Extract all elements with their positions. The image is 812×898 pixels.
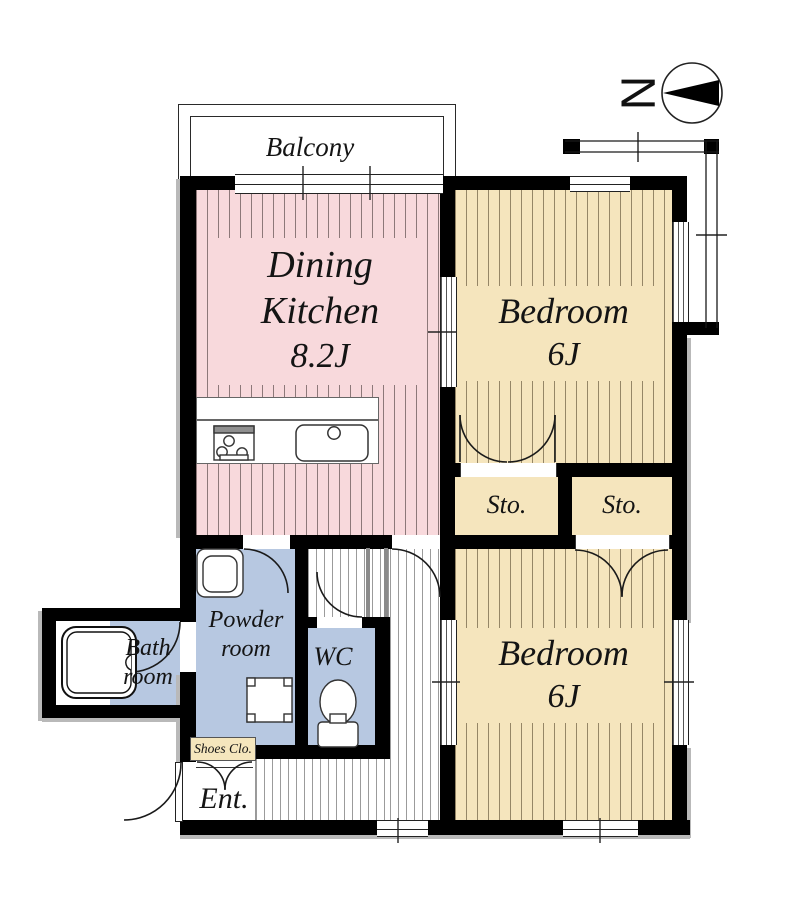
entrance-door-leaf — [175, 762, 183, 822]
wall-segment — [440, 548, 455, 620]
wall-segment — [42, 608, 56, 718]
wall-segment — [42, 608, 180, 621]
wall-segment — [668, 535, 687, 549]
wall-segment — [443, 176, 570, 190]
bedroom-bottom-window — [563, 820, 638, 837]
storage-right-label: Sto. — [572, 489, 672, 521]
balcony-label: Balcony — [230, 131, 390, 164]
hall-bedroom-sliding-door — [440, 620, 457, 745]
compass-north-label: N — [611, 76, 664, 111]
hall-floor-vertical — [390, 548, 440, 820]
dining-kitchen-label: Dining Kitchen 8.2J — [213, 238, 427, 385]
counter-edge-line — [197, 419, 378, 421]
entry-door-arc — [124, 763, 181, 820]
wall-segment — [308, 617, 317, 628]
wc-label: WC — [305, 641, 361, 673]
wall-segment — [180, 176, 196, 535]
hall-floor-horizontal — [256, 759, 390, 820]
wall-segment — [440, 387, 455, 548]
storage-left-label: Sto. — [455, 489, 558, 521]
shoes-closet-label: Shoes Clo. — [190, 737, 256, 761]
wall-segment — [196, 535, 243, 549]
room-name: Bedroom — [466, 290, 661, 334]
compass-circle — [662, 63, 722, 123]
bedroom-top-side-window — [672, 222, 689, 322]
bathroom-label: Bath room — [102, 634, 194, 693]
wall-segment — [440, 535, 575, 549]
wc-door-opening — [317, 617, 362, 628]
room-name: Dining Kitchen — [213, 242, 427, 335]
wall-segment — [375, 617, 390, 759]
hall-bottom-window — [377, 820, 428, 837]
wall-segment — [555, 463, 687, 477]
powder-room-door-opening — [243, 535, 290, 549]
bedroom-bottom-right-window — [672, 620, 689, 745]
room-size: 8.2J — [213, 335, 427, 378]
entrance-label: Ent. — [190, 781, 258, 818]
wall-segment — [42, 705, 180, 718]
wall-segment — [558, 477, 572, 535]
powder-room-label: Powder room — [186, 606, 306, 665]
balcony-window — [235, 174, 443, 194]
wc-vestibule-floor — [308, 548, 390, 617]
railing-cap — [704, 139, 719, 154]
railing-cap — [563, 139, 580, 154]
floor-plan: N Balcony Dining Kitchen 8.2J Bedroom 6J… — [0, 0, 812, 898]
bedroom-top-balcony-window — [570, 176, 630, 192]
compass-needle-icon — [663, 80, 719, 106]
wall-segment — [672, 335, 687, 480]
wall-segment — [440, 745, 455, 820]
room-size: 6J — [466, 334, 661, 375]
wc-vestibule-jamb-right — [384, 548, 388, 617]
wall-segment — [672, 322, 719, 335]
wc-vestibule-jamb-left — [366, 548, 370, 617]
storage-left-opening — [460, 463, 557, 477]
bedroom-top-label: Bedroom 6J — [466, 286, 661, 381]
room-name: Bedroom — [466, 632, 661, 676]
wall-segment — [672, 176, 687, 222]
room-size: 6J — [466, 676, 661, 717]
bedroom-bottom-label: Bedroom 6J — [466, 628, 661, 723]
dk-hall-door-opening — [392, 535, 440, 549]
storage-right-opening — [575, 535, 670, 549]
wall-segment — [290, 535, 392, 549]
kitchen-counter — [196, 397, 379, 464]
dk-bedroom-sliding-door — [440, 277, 457, 387]
compass: N — [611, 63, 723, 123]
